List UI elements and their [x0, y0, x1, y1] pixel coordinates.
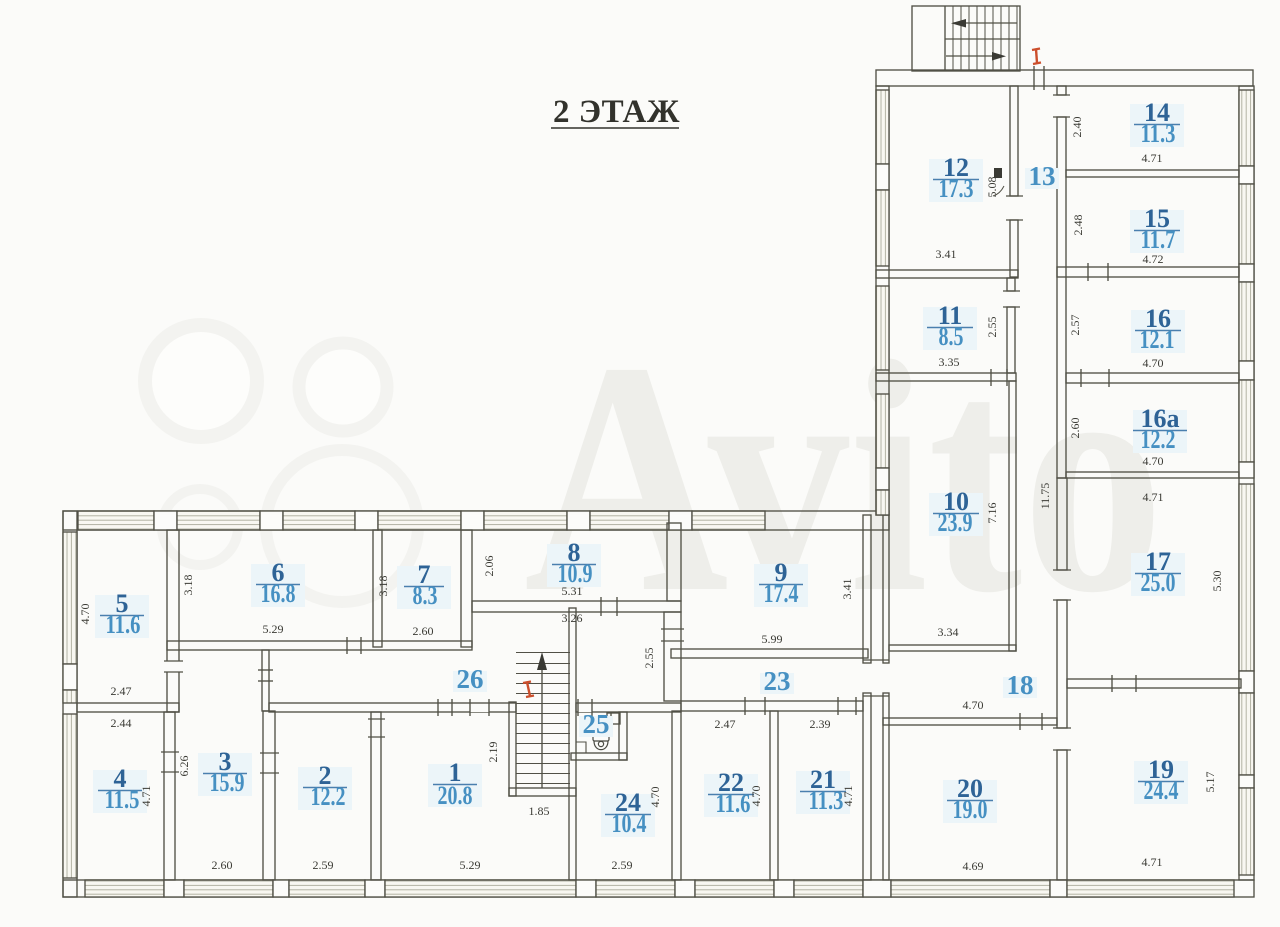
svg-text:17.3: 17.3 [939, 174, 974, 203]
svg-text:2.19: 2.19 [486, 742, 500, 763]
svg-text:2.06: 2.06 [482, 556, 496, 577]
svg-text:2.47: 2.47 [111, 684, 132, 698]
svg-text:4.69: 4.69 [963, 859, 984, 873]
svg-text:3.18: 3.18 [181, 575, 195, 596]
svg-text:5.99: 5.99 [762, 632, 783, 646]
svg-text:2.39: 2.39 [810, 717, 831, 731]
svg-text:4.71: 4.71 [1143, 490, 1164, 504]
svg-text:3.34: 3.34 [938, 625, 959, 639]
svg-text:2.59: 2.59 [313, 858, 334, 872]
svg-text:17.4: 17.4 [764, 579, 799, 608]
svg-text:11.3: 11.3 [1141, 119, 1176, 148]
svg-text:23.9: 23.9 [938, 508, 973, 537]
svg-text:8.3: 8.3 [413, 581, 438, 610]
svg-text:2.44: 2.44 [111, 716, 132, 730]
svg-text:19.0: 19.0 [953, 795, 988, 824]
svg-text:12.2: 12.2 [311, 782, 346, 811]
svg-text:12.1: 12.1 [1140, 325, 1175, 354]
svg-text:25: 25 [583, 709, 610, 739]
svg-text:7.16: 7.16 [985, 503, 999, 524]
svg-text:23: 23 [764, 666, 791, 696]
svg-text:4.71: 4.71 [841, 786, 855, 807]
svg-text:4.71: 4.71 [139, 786, 153, 807]
svg-text:1.85: 1.85 [529, 804, 550, 818]
svg-text:3.18: 3.18 [376, 576, 390, 597]
svg-text:2.47: 2.47 [715, 717, 736, 731]
svg-text:26: 26 [457, 664, 484, 694]
svg-text:Avito: Avito [524, 293, 1164, 661]
svg-text:11.5: 11.5 [105, 785, 140, 814]
svg-text:11.6: 11.6 [716, 789, 751, 818]
svg-text:4.70: 4.70 [78, 604, 92, 625]
svg-text:6.26: 6.26 [177, 756, 191, 777]
svg-text:15.9: 15.9 [210, 768, 245, 797]
svg-text:11.6: 11.6 [106, 610, 141, 639]
svg-text:5.08: 5.08 [985, 177, 999, 198]
svg-text:2.60: 2.60 [1068, 418, 1082, 439]
svg-text:4.70: 4.70 [1143, 454, 1164, 468]
svg-text:18: 18 [1007, 670, 1034, 700]
svg-text:2.60: 2.60 [413, 624, 434, 638]
svg-text:11.75: 11.75 [1038, 483, 1052, 510]
svg-text:4.70: 4.70 [963, 698, 984, 712]
svg-text:24.4: 24.4 [1144, 776, 1179, 805]
svg-text:12.2: 12.2 [1141, 425, 1176, 454]
svg-text:5.17: 5.17 [1203, 772, 1217, 793]
svg-text:3.26: 3.26 [562, 611, 583, 625]
svg-text:8.5: 8.5 [939, 322, 964, 351]
svg-text:3.41: 3.41 [840, 579, 854, 600]
svg-text:4.71: 4.71 [1142, 855, 1163, 869]
svg-text:11.7: 11.7 [1141, 225, 1176, 254]
svg-text:2.55: 2.55 [642, 648, 656, 669]
svg-text:20.8: 20.8 [438, 781, 473, 810]
svg-text:2.57: 2.57 [1068, 315, 1082, 336]
svg-text:13: 13 [1029, 161, 1056, 191]
svg-text:5.29: 5.29 [460, 858, 481, 872]
svg-text:25.0: 25.0 [1141, 568, 1176, 597]
svg-text:2.55: 2.55 [985, 317, 999, 338]
svg-text:4.72: 4.72 [1143, 252, 1164, 266]
svg-text:4.70: 4.70 [1143, 356, 1164, 370]
svg-text:10.4: 10.4 [612, 809, 647, 838]
svg-text:2.60: 2.60 [212, 858, 233, 872]
svg-text:5.29: 5.29 [263, 622, 284, 636]
svg-text:2.48: 2.48 [1071, 215, 1085, 236]
svg-text:2 ЭТАЖ: 2 ЭТАЖ [553, 94, 680, 130]
svg-text:5.30: 5.30 [1210, 571, 1224, 592]
svg-text:4.70: 4.70 [648, 787, 662, 808]
svg-text:2.59: 2.59 [612, 858, 633, 872]
svg-text:4.71: 4.71 [1142, 151, 1163, 165]
svg-text:4.70: 4.70 [749, 786, 763, 807]
svg-text:5.31: 5.31 [562, 584, 583, 598]
svg-text:16.8: 16.8 [261, 579, 296, 608]
svg-text:2.40: 2.40 [1070, 117, 1084, 138]
svg-text:11.3: 11.3 [809, 786, 844, 815]
svg-text:3.35: 3.35 [939, 355, 960, 369]
svg-text:3.41: 3.41 [936, 247, 957, 261]
